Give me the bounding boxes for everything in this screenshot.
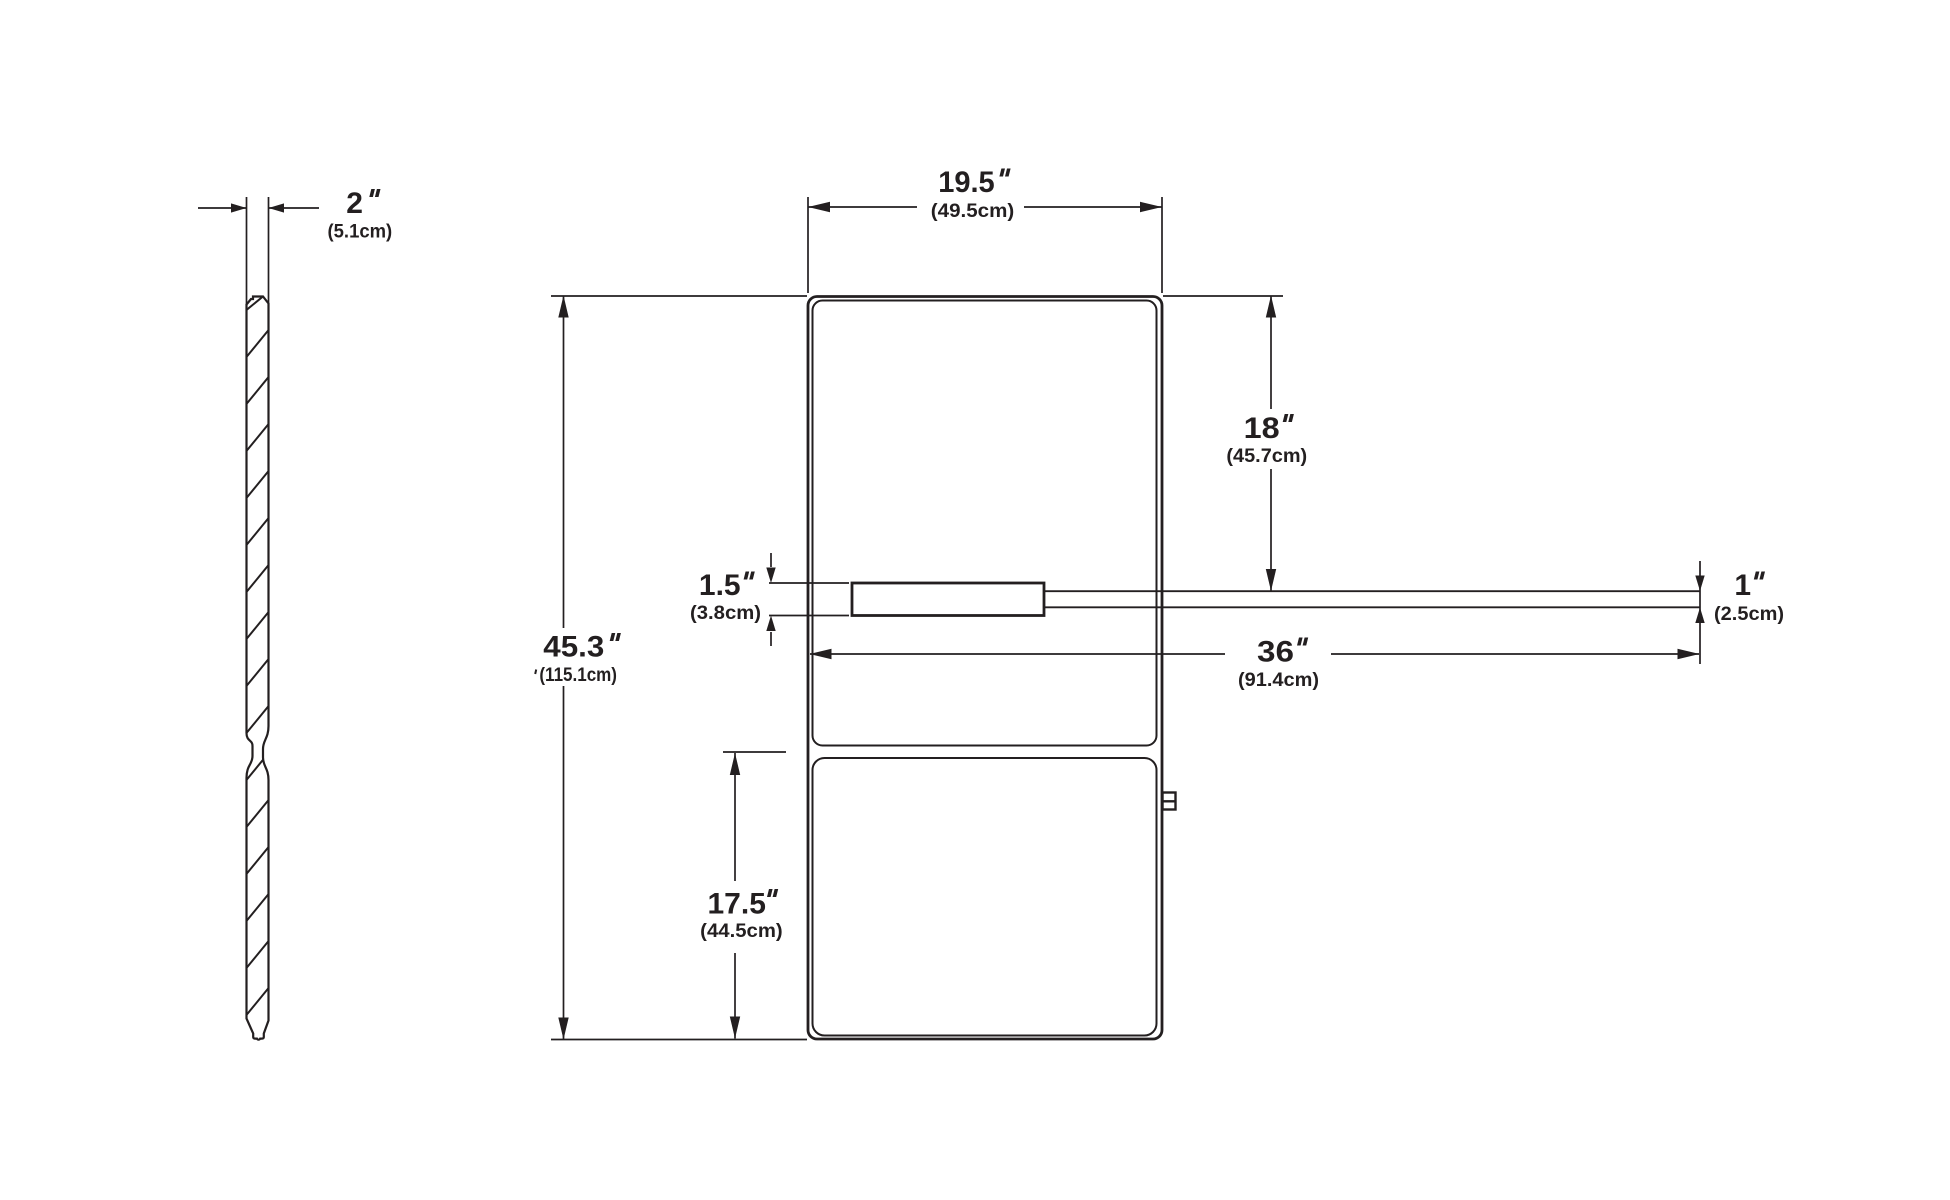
- svg-text:(2.5cm): (2.5cm): [1714, 603, 1784, 625]
- svg-text:(91.4cm): (91.4cm): [1238, 669, 1319, 691]
- svg-text:(49.5cm): (49.5cm): [931, 200, 1014, 222]
- svg-text:36: 36: [1257, 636, 1294, 669]
- svg-text:(3.8cm): (3.8cm): [690, 602, 761, 624]
- svg-text:19.5: 19.5: [938, 166, 995, 199]
- svg-text:18: 18: [1244, 412, 1280, 445]
- svg-text:17.5: 17.5: [708, 888, 766, 921]
- svg-text:(5.1cm): (5.1cm): [328, 221, 393, 243]
- svg-text:45.3: 45.3: [543, 630, 604, 663]
- svg-text:(45.7cm): (45.7cm): [1226, 445, 1307, 467]
- svg-text:(115.1cm): (115.1cm): [539, 664, 617, 686]
- svg-text:2: 2: [346, 187, 363, 220]
- svg-text:1: 1: [1734, 569, 1751, 602]
- svg-text:1.5: 1.5: [699, 569, 741, 602]
- svg-text:(44.5cm): (44.5cm): [700, 920, 783, 942]
